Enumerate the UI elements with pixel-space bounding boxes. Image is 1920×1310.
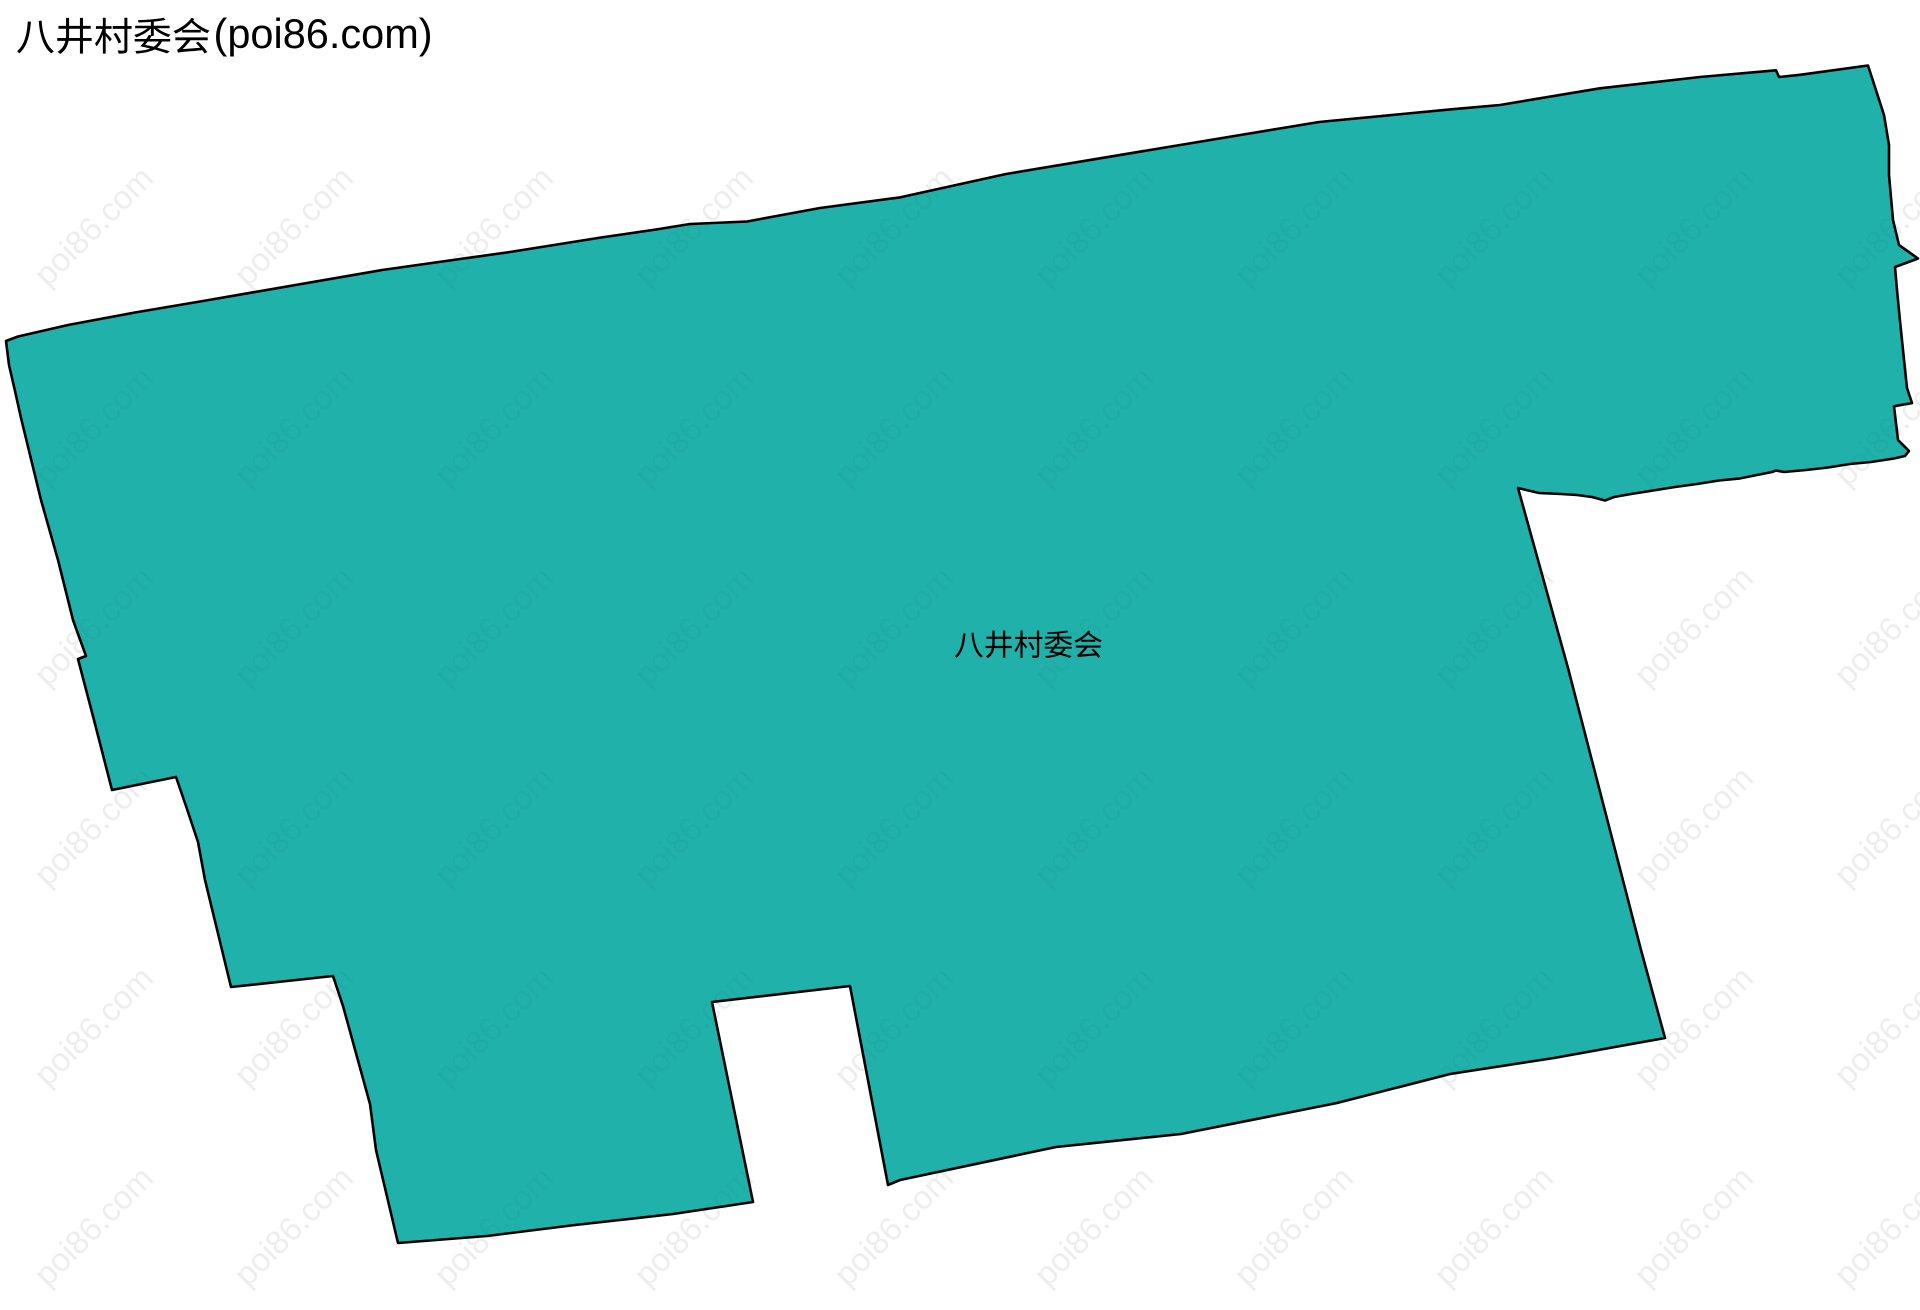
svg-text:(poi86.com): (poi86.com) [214,10,433,57]
